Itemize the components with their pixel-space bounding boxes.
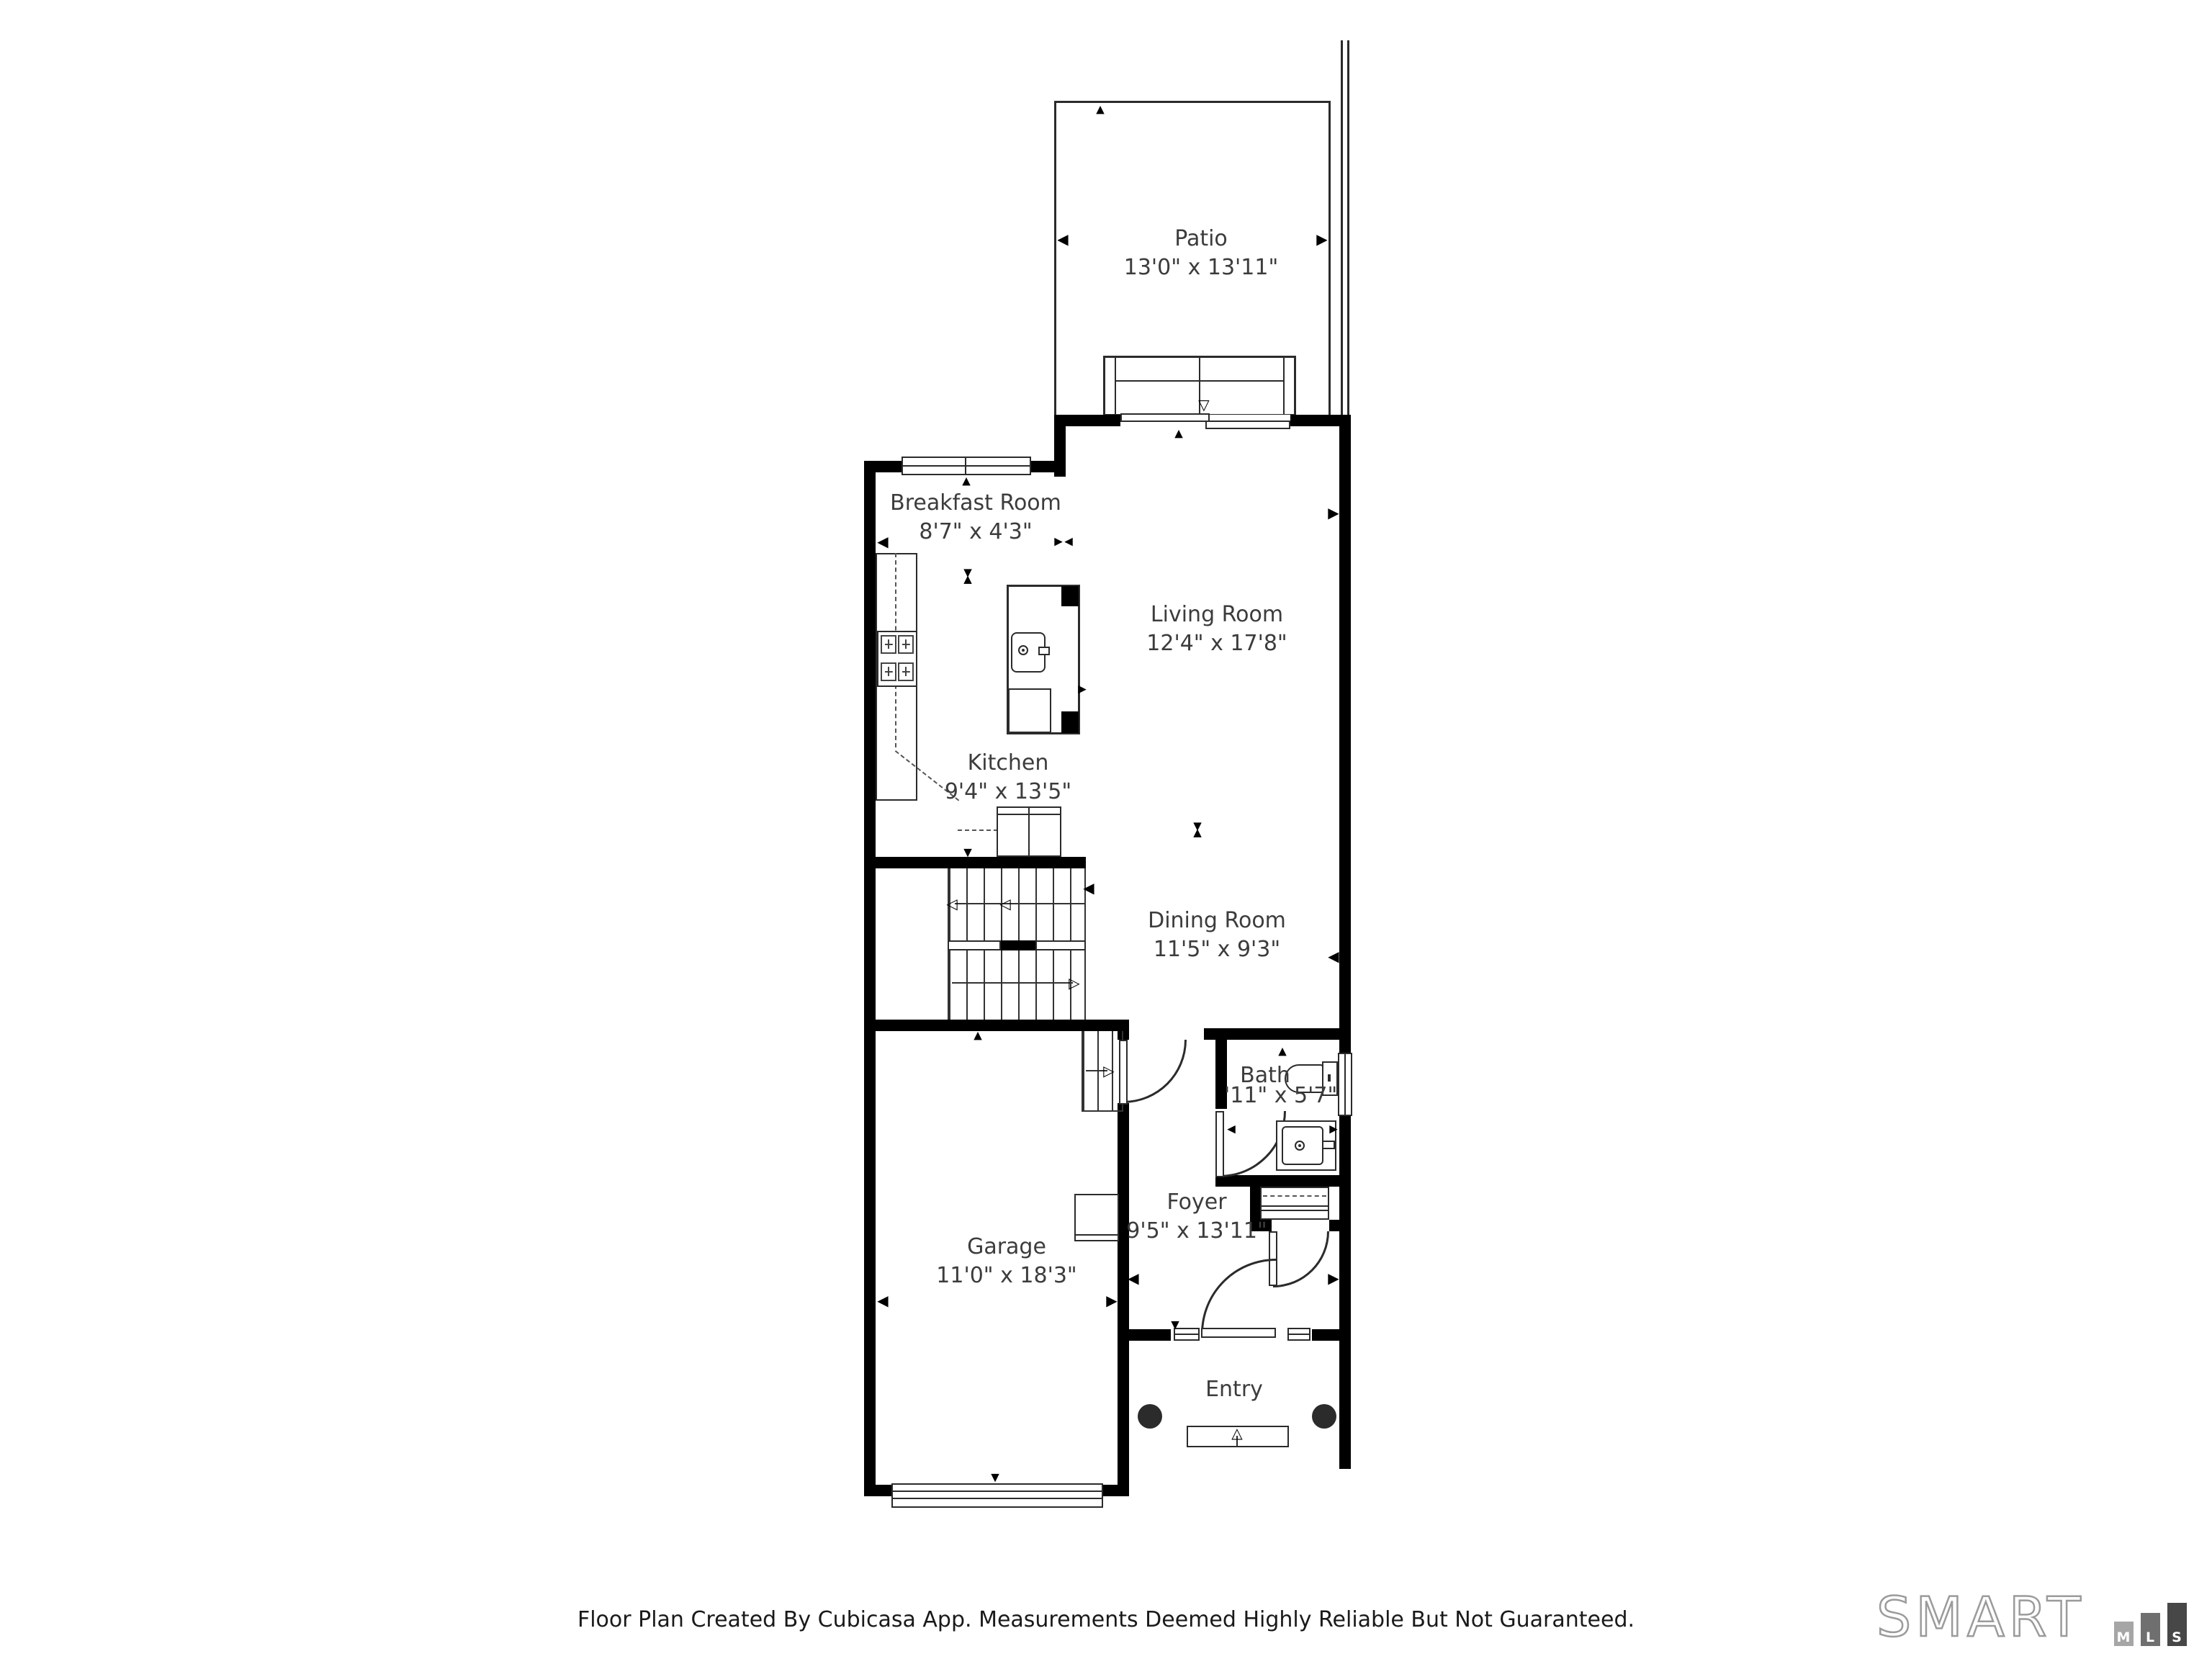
wall-bath-bottom: [1215, 1175, 1351, 1187]
sliding-door-panel-2: [1205, 421, 1290, 429]
bath-window-midline: [1344, 1054, 1346, 1115]
closet-rod-bottom: [1260, 1210, 1329, 1211]
garage-door-line2: [893, 1498, 1102, 1499]
dim-bath-left-icon: ◀: [1227, 1124, 1236, 1135]
fence-line: [1341, 40, 1349, 418]
room-dims: 9'4" x 13'5": [945, 778, 1071, 806]
wall-kitchen-stairs: [864, 857, 1086, 868]
dim-slider-below-icon: ▲: [1174, 428, 1183, 439]
entry-bush-left: [1138, 1404, 1162, 1429]
stairs-landing-left: [948, 940, 1001, 950]
logo-block-m: M: [2114, 1622, 2134, 1646]
front-door-arc: [1201, 1259, 1276, 1334]
logo-block-l: L: [2141, 1613, 2160, 1646]
closet-shelf-dashed: [1263, 1195, 1326, 1197]
burner: [898, 662, 914, 681]
wall-bath-top: [1204, 1028, 1339, 1040]
wall-closet-stub-right: [1329, 1220, 1351, 1231]
stairs-arrow-up-icon: ◁: [946, 896, 957, 911]
room-name: Entry: [1205, 1375, 1263, 1404]
dim-foyer-left-icon: ◀: [1128, 1271, 1138, 1285]
sofa-arm-left: [1115, 356, 1116, 416]
stairs-upper-flight: [948, 868, 1086, 940]
dim-dining-vert-icon: ▼ ▲: [1193, 823, 1202, 836]
tri-up-icon: ▲: [1193, 829, 1202, 836]
garage-utility-line: [1076, 1234, 1118, 1236]
garage-door: [891, 1483, 1103, 1508]
stairs-landing-right: [1035, 940, 1086, 950]
dim-garage-left-icon: ◀: [877, 1293, 888, 1308]
logo-block-s-text: S: [2172, 1629, 2182, 1645]
sidelight-right: [1287, 1328, 1310, 1341]
stairs-run-lower: [952, 982, 1073, 984]
room-label-breakfast: Breakfast Room 8'7" x 4'3": [890, 489, 1061, 547]
stairs-landing-center: [1001, 940, 1035, 950]
dim-kitchen-bottom-icon: ▼: [963, 848, 972, 858]
room-label-patio: Patio 13'0" x 13'11": [1124, 225, 1279, 282]
dim-garage-door-icon: ▼: [991, 1473, 999, 1483]
burner: [898, 635, 914, 654]
room-label-bath-dims: '11" x 5'7": [1224, 1084, 1337, 1107]
room-label-kitchen: Kitchen 9'4" x 13'5": [945, 749, 1071, 806]
stairs-lower-flight: [948, 950, 1086, 1020]
room-dims: 8'7" x 4'3": [890, 518, 1061, 547]
floor-plan-page: ◁ ◁ ▷ ▷ △ ◀ ▶ ▲ ▽ ▲ ▲ ◀ ▶ ◀ ▼: [0, 0, 2212, 1659]
entry-bush-right: [1312, 1404, 1336, 1429]
foyer-door-leaf: [1119, 1040, 1128, 1105]
dim-island-icon: ▶: [1078, 684, 1087, 695]
logo-brand-text: SMART: [1876, 1587, 2085, 1647]
dim-stairs-up-icon: ▲: [974, 1030, 982, 1041]
breakfast-window: [902, 457, 1031, 475]
garage-door-line1: [893, 1491, 1102, 1492]
dim-patio-left-icon: ◀: [1057, 232, 1068, 246]
dim-living-right-icon: ▶: [1328, 505, 1339, 520]
sidelight-midline: [1289, 1334, 1309, 1335]
room-name: Garage: [936, 1233, 1076, 1262]
dim-dining-right-icon: ◀: [1328, 949, 1339, 963]
room-name: Foyer: [1126, 1188, 1267, 1217]
room-dims: 13'0" x 13'11": [1124, 253, 1279, 282]
dim-patio-top-icon: ▲: [1096, 104, 1105, 115]
logo-block-m-text: M: [2117, 1629, 2131, 1645]
tri-up-icon: ▲: [963, 576, 972, 583]
room-name: Patio: [1124, 225, 1279, 253]
room-dims: 11'0" x 18'3": [936, 1262, 1076, 1290]
sink-faucet: [1038, 647, 1050, 655]
stairs-arrow-down-icon: ▷: [1069, 976, 1079, 990]
dim-slider-icon: ▽: [1198, 397, 1209, 412]
stairs-stub-arrow-icon: ▷: [1103, 1064, 1114, 1078]
room-label-garage: Garage 11'0" x 18'3": [936, 1233, 1076, 1290]
dim-bath-right-icon: ▶: [1329, 1124, 1338, 1135]
room-dims: 12'4" x 17'8": [1146, 629, 1287, 658]
room-dims: 9'5" x 13'11": [1126, 1217, 1267, 1246]
closet-rod-top: [1260, 1205, 1329, 1207]
room-name: Kitchen: [945, 749, 1071, 778]
dim-breakfast-right2-icon: ◀: [1064, 536, 1073, 547]
room-name: Breakfast Room: [890, 489, 1061, 518]
room-name: Dining Room: [1148, 907, 1286, 935]
bath-door-leaf: [1215, 1111, 1224, 1177]
sink-drain-dot: [1022, 649, 1025, 652]
logo-block-s: S: [2167, 1603, 2187, 1646]
dim-kitchen-vert-icon: ▼ ▲: [963, 570, 972, 583]
room-label-foyer: Foyer 9'5" x 13'11": [1126, 1188, 1267, 1246]
sofa-arm-right: [1283, 356, 1285, 416]
room-dims: 11'5" x 9'3": [1148, 935, 1286, 964]
dim-breakfast-left-icon: ◀: [877, 534, 888, 549]
dim-bath-up-icon: ▲: [1278, 1046, 1287, 1057]
front-door-leaf: [1201, 1328, 1276, 1338]
toilet-button: [1328, 1074, 1331, 1082]
dim-window-icon: ▲: [962, 476, 971, 487]
island-corner-bottom: [1061, 711, 1079, 733]
room-name: Living Room: [1146, 601, 1287, 629]
stairs-run-upper: [955, 903, 1086, 904]
sidelight-midline: [1175, 1334, 1198, 1335]
walkway-arrow-icon: △: [1231, 1426, 1242, 1440]
dim-foyer-right-icon: ▶: [1328, 1271, 1339, 1285]
island-corner-top: [1061, 586, 1079, 606]
dim-garage-right-icon: ▶: [1106, 1293, 1117, 1308]
burner: [881, 662, 896, 681]
closet-box: [1260, 1187, 1329, 1220]
foyer-door-arc: [1123, 1040, 1187, 1103]
wall-garage-foyer: [1118, 1103, 1129, 1496]
smartmls-logo-svg: SMART M L S: [1876, 1587, 2208, 1647]
wall-left-outer: [864, 461, 876, 1496]
window-midline: [903, 465, 1030, 467]
refrigerator: [997, 806, 1061, 857]
logo-block-l-text: L: [2146, 1629, 2154, 1645]
dim-stairs-icon: ◀: [1083, 881, 1094, 895]
dishwasher: [1008, 688, 1051, 733]
sliding-door-panel-1: [1120, 413, 1210, 422]
room-label-entry: Entry: [1205, 1375, 1263, 1404]
counter-dashed-run: [958, 829, 998, 831]
stairs-stub: [1082, 1031, 1123, 1112]
wall-stairs-garage: [864, 1020, 1129, 1031]
burner: [881, 635, 896, 654]
fridge-inner-line: [998, 814, 1060, 815]
bath-faucet: [1322, 1141, 1335, 1149]
dim-patio-right-icon: ▶: [1316, 232, 1327, 246]
stove: [877, 631, 917, 687]
bath-window: [1338, 1053, 1352, 1116]
smartmls-logo: SMART M L S: [1876, 1587, 2208, 1650]
basin-drain-dot: [1298, 1144, 1301, 1147]
room-label-dining: Dining Room 11'5" x 9'3": [1148, 907, 1286, 964]
dim-front-door-icon: ▼: [1171, 1320, 1179, 1331]
closet-door-arc: [1273, 1231, 1329, 1287]
stairs-arrow-up2-icon: ◁: [999, 896, 1010, 911]
wall-right-outer: [1339, 415, 1351, 1469]
room-label-living: Living Room 12'4" x 17'8": [1146, 601, 1287, 658]
